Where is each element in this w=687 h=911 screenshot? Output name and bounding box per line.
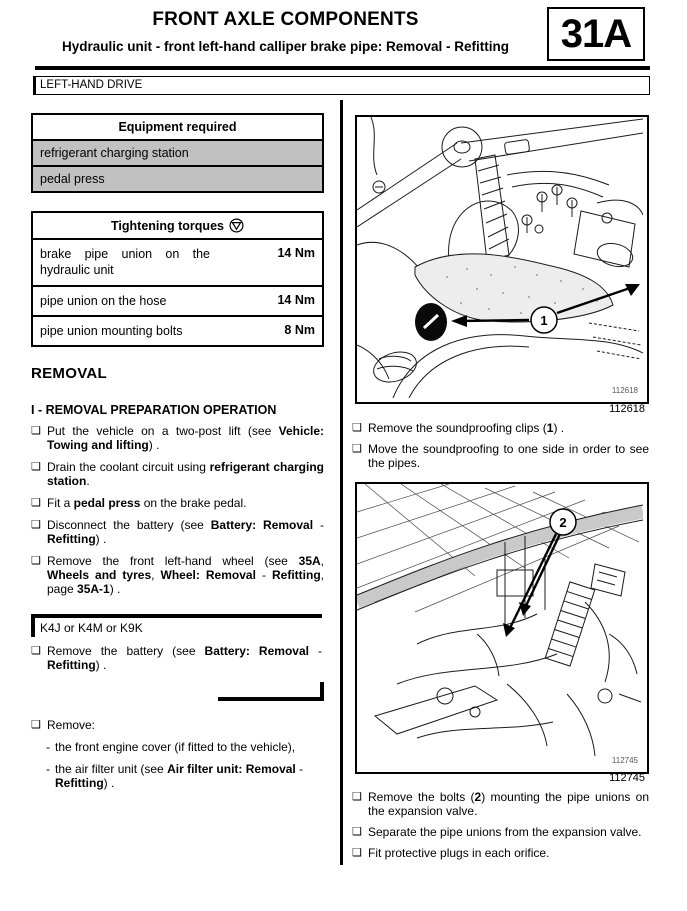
remove-group-list: ❑ Remove: - the front engine cover (if f… <box>31 718 324 790</box>
torque-symbol-icon <box>229 218 244 233</box>
checkbox-bullet-icon: ❑ <box>352 442 368 470</box>
checkbox-bullet-icon: ❑ <box>352 790 368 818</box>
torques-table-title: Tightening torques <box>33 213 322 240</box>
equipment-table: Equipment required refrigerant charging … <box>31 113 324 193</box>
manual-page: FRONT AXLE COMPONENTS Hydraulic unit - f… <box>0 0 687 911</box>
column-divider <box>340 100 343 865</box>
engine-variant-end-bracket <box>218 682 324 701</box>
figure-callout-1: 1 <box>540 313 547 328</box>
removal-step-list: ❑ Put the vehicle on a two-post lift (se… <box>31 424 324 604</box>
table-row: refrigerant charging station <box>33 141 322 167</box>
drive-banner: LEFT-HAND DRIVE <box>33 76 650 95</box>
checkbox-bullet-icon: ❑ <box>31 718 47 732</box>
page-subtitle: Hydraulic unit - front left-hand callipe… <box>28 39 543 54</box>
list-item: ❑ Remove: <box>31 718 324 732</box>
sub-list-item: - the front engine cover (if fitted to t… <box>46 740 324 754</box>
list-item: ❑ Remove the bolts (2) mounting the pipe… <box>352 790 649 818</box>
engine-variant-label: K4J or K4M or K9K <box>31 618 322 636</box>
table-row: pedal press <box>33 167 322 191</box>
figure-112618-illustration: 1 112618 <box>357 117 643 398</box>
figure-112745-illustration: 2 112745 <box>357 484 643 768</box>
checkbox-bullet-icon: ❑ <box>31 554 47 596</box>
table-row: pipe union mounting bolts 8 Nm <box>33 317 322 345</box>
figure-id-label: 112618 <box>355 403 645 415</box>
sub-list-item: - the air filter unit (see Air filter un… <box>46 762 324 790</box>
checkbox-bullet-icon: ❑ <box>31 424 47 452</box>
list-item: ❑ Disconnect the battery (see Battery: R… <box>31 518 324 546</box>
engine-variant-section: K4J or K4M or K9K ❑ Remove the battery (… <box>31 614 322 680</box>
torques-table: Tightening torques brake pipe union on t… <box>31 211 324 347</box>
list-item: ❑ Separate the pipe unions from the expa… <box>352 825 649 839</box>
list-item: ❑ Fit protective plugs in each orifice. <box>352 846 649 860</box>
table-row: brake pipe union on the hydraulic unit 1… <box>33 240 322 287</box>
figure-id-label: 112745 <box>355 772 645 784</box>
figure-id-watermark: 112618 <box>612 386 639 395</box>
checkbox-bullet-icon: ❑ <box>352 825 368 839</box>
header-rule <box>35 66 650 70</box>
section-code: 31A <box>561 12 631 57</box>
checkbox-bullet-icon: ❑ <box>31 518 47 546</box>
figure-callout-2: 2 <box>559 515 566 530</box>
page-header: FRONT AXLE COMPONENTS Hydraulic unit - f… <box>28 9 543 54</box>
list-item: ❑ Drain the coolant circuit using refrig… <box>31 460 324 488</box>
table-row: pipe union on the hose 14 Nm <box>33 287 322 317</box>
figure2-caption-list: ❑ Remove the bolts (2) mounting the pipe… <box>352 790 649 867</box>
section-code-box: 31A <box>547 7 645 61</box>
page-title: FRONT AXLE COMPONENTS <box>28 9 543 31</box>
list-item: ❑ Move the soundproofing to one side in … <box>352 442 649 470</box>
checkbox-bullet-icon: ❑ <box>352 846 368 860</box>
list-item: ❑ Put the vehicle on a two-post lift (se… <box>31 424 324 452</box>
figure1-caption-list: ❑ Remove the soundproofing clips (1) . ❑… <box>352 421 649 477</box>
list-item: ❑ Remove the battery (see Battery: Remov… <box>31 644 322 672</box>
list-item: ❑ Remove the soundproofing clips (1) . <box>352 421 649 435</box>
list-item: ❑ Remove the front left-hand wheel (see … <box>31 554 324 596</box>
checkbox-bullet-icon: ❑ <box>31 644 47 672</box>
figure-id-watermark: 112745 <box>612 756 639 765</box>
dash-bullet: - <box>46 762 55 790</box>
dash-bullet: - <box>46 740 55 754</box>
checkbox-bullet-icon: ❑ <box>31 496 47 510</box>
list-item: ❑ Fit a pedal press on the brake pedal. <box>31 496 324 510</box>
checkbox-bullet-icon: ❑ <box>31 460 47 488</box>
equipment-table-title: Equipment required <box>33 115 322 141</box>
removal-subheading: I - REMOVAL PREPARATION OPERATION <box>31 403 276 417</box>
figure-expansion-valve-bolts: 2 112745 <box>355 482 649 774</box>
removal-heading: REMOVAL <box>31 365 107 382</box>
checkbox-bullet-icon: ❑ <box>352 421 368 435</box>
figure-engine-bay-soundproofing: 1 112618 <box>355 115 649 404</box>
